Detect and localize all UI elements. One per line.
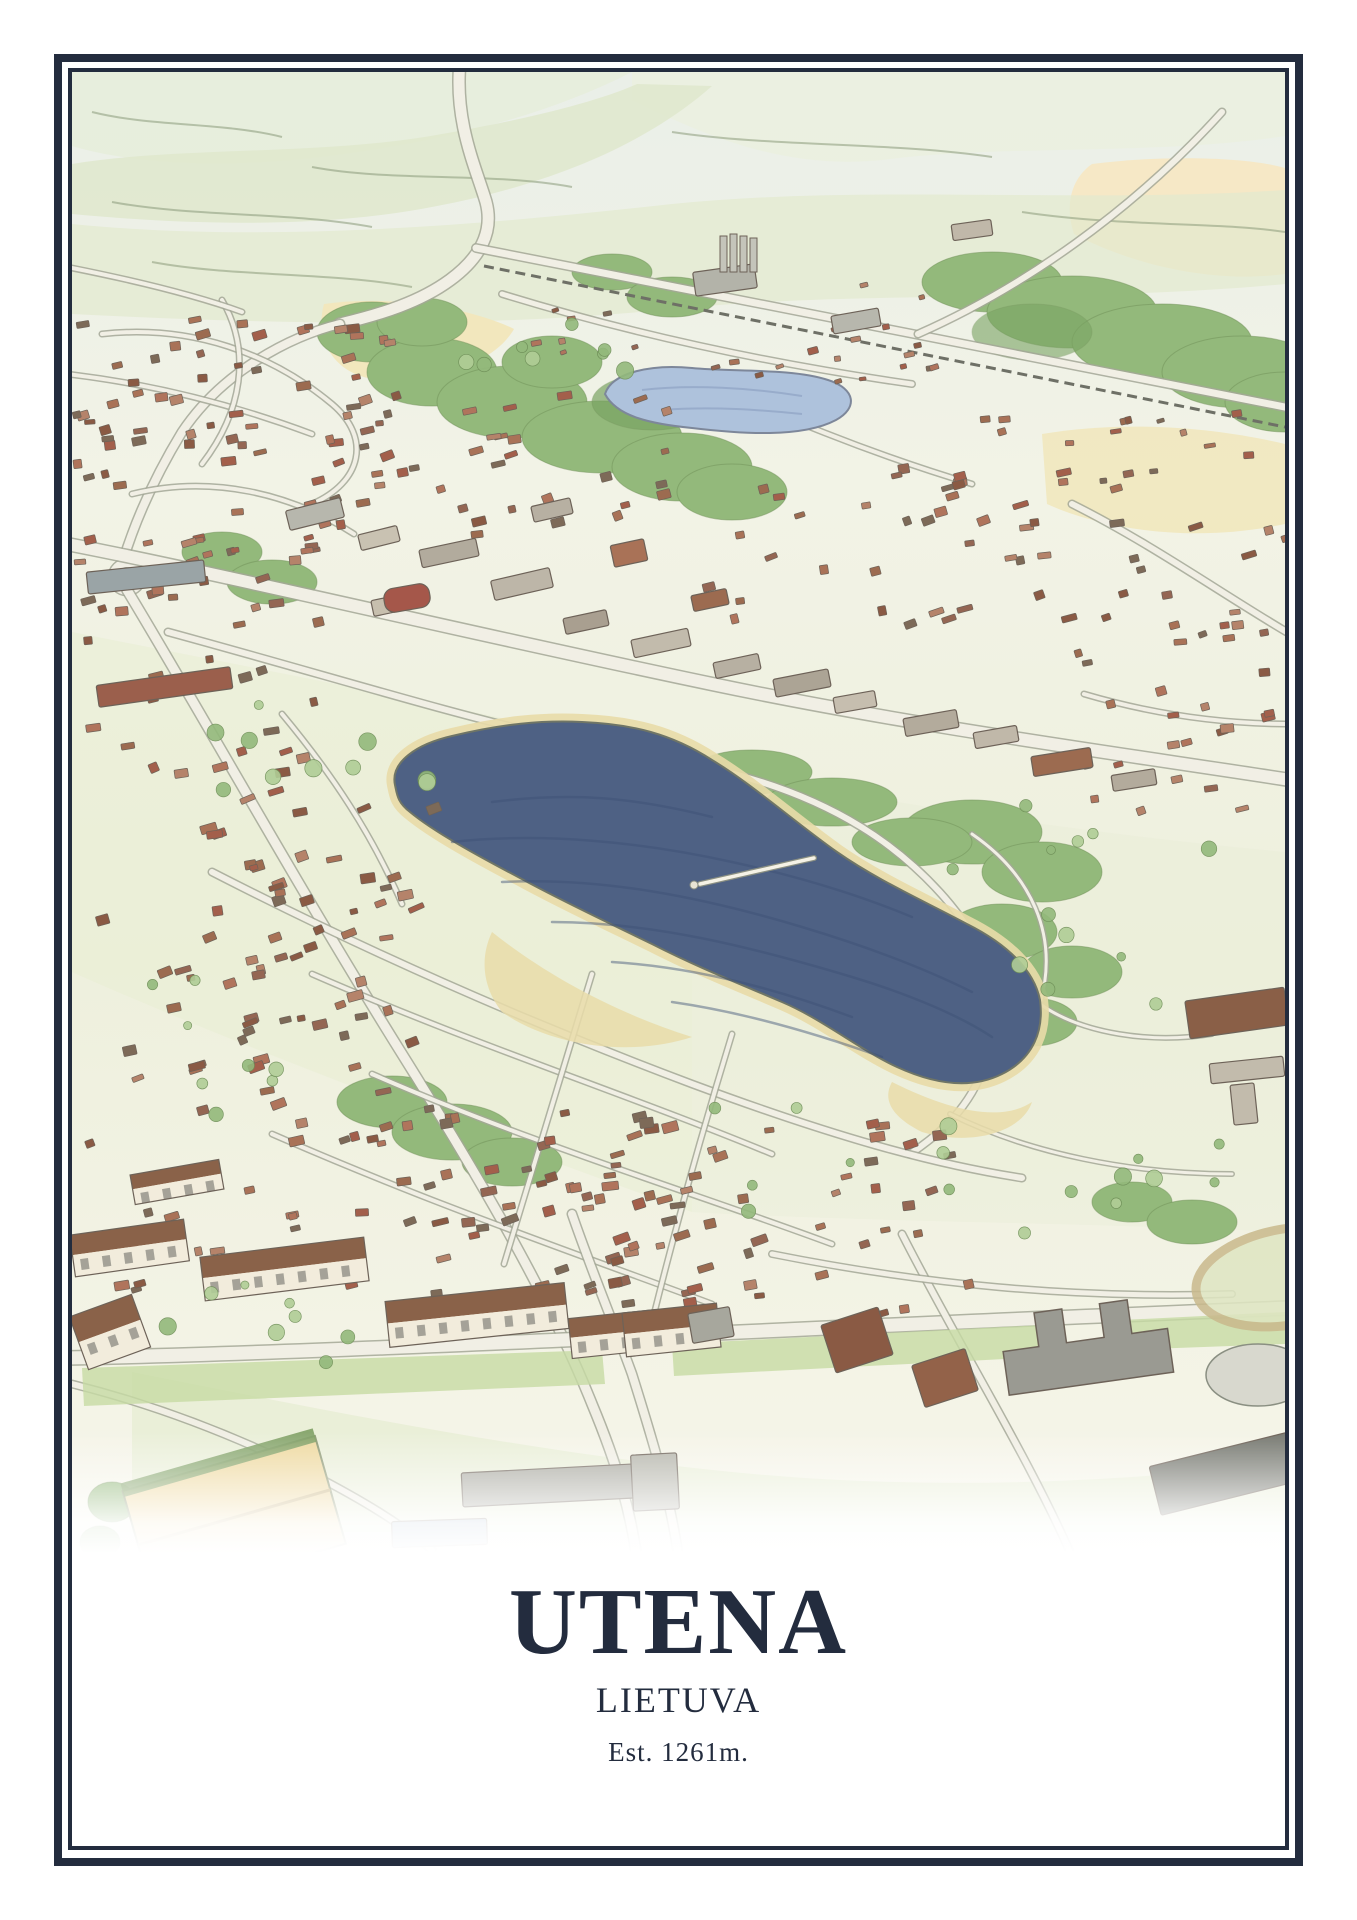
tree [459,354,474,369]
house [582,1205,594,1212]
tree [346,760,361,775]
house [729,359,739,365]
house [461,1217,475,1227]
tree [525,351,540,366]
house [861,502,871,509]
house [980,416,990,423]
house [350,332,364,339]
house [558,338,565,345]
house [819,565,828,575]
house [101,470,110,479]
house [1259,629,1269,637]
house [86,723,102,732]
house [1037,552,1051,559]
tree [1111,1198,1122,1209]
house [604,1172,616,1179]
tree [216,782,230,796]
house [1259,668,1270,677]
house [1100,478,1107,484]
house [1065,440,1074,445]
poster-title: UTENA [0,1575,1357,1669]
house [735,597,744,604]
house [234,362,243,368]
house [882,324,890,331]
tree [209,1107,224,1122]
poster-subtitle: LIETUVA [0,1682,1357,1718]
house [339,1031,349,1041]
house [212,905,223,916]
house [900,363,907,369]
bottom-fade [72,1432,1285,1553]
tree [1072,836,1084,848]
tree [159,1318,176,1335]
house [902,1200,915,1211]
house [336,520,346,530]
tree [1134,1154,1143,1163]
tree [341,1330,355,1344]
house [312,617,324,628]
house [1264,525,1274,535]
tree [207,724,224,741]
tree [566,318,579,331]
tree [184,1021,192,1029]
tree [1011,957,1027,973]
house [1220,622,1230,630]
tree [1042,908,1056,922]
house [1174,639,1187,646]
house [899,1304,909,1313]
house [343,411,353,420]
tree [791,1102,802,1113]
tree [241,1281,249,1289]
tree [1020,800,1032,812]
house [1090,795,1099,803]
house [1030,518,1040,526]
tree [709,1102,721,1114]
tree [419,774,436,791]
tree [1041,982,1055,996]
house [102,435,114,442]
house [229,410,243,418]
house [569,1182,582,1193]
house [84,419,95,424]
house [205,655,213,663]
tree [147,979,157,989]
house [764,1127,774,1133]
house [644,1190,656,1201]
house [73,459,82,469]
house [269,598,285,608]
house [1220,723,1234,733]
tree [1201,841,1217,857]
house [174,768,189,778]
tree [944,1184,955,1195]
house [913,342,921,349]
tree [285,1298,295,1308]
house [1123,470,1134,478]
house [83,636,92,645]
house [424,1105,435,1113]
house [113,481,127,490]
house [834,356,841,362]
house [639,1117,654,1129]
house [1149,468,1158,474]
house [963,1279,974,1290]
tree [616,362,633,379]
tree [254,700,263,709]
house [918,294,925,300]
house [115,606,128,616]
house [1232,620,1244,629]
tree [937,1146,950,1159]
tree [1210,1178,1219,1187]
house [74,559,86,565]
tree [268,1324,284,1340]
house [246,423,259,429]
tree [598,344,611,357]
tree [947,864,958,875]
tree [319,1356,332,1369]
tree [190,975,200,985]
tree [1214,1139,1224,1149]
house [155,392,168,402]
tree [741,1204,755,1218]
house [150,354,160,364]
house [1180,429,1188,437]
tree [197,1078,208,1089]
tree [1146,1170,1163,1187]
house [194,1247,203,1257]
tree [1059,927,1074,942]
house [397,467,409,477]
tree [516,341,527,352]
tree [940,1118,957,1135]
town-illustration [72,72,1285,1553]
house [737,1194,748,1204]
house [735,531,745,539]
house [170,341,181,351]
tree [265,769,281,785]
house [304,324,313,330]
house [471,530,484,538]
large-building [1230,1083,1258,1125]
house [334,325,348,334]
tree [1018,1227,1030,1239]
tree [1047,846,1056,855]
house [1109,519,1124,528]
house [476,1224,489,1232]
house [237,320,248,328]
house [374,482,385,489]
tree [359,733,377,751]
poster: { "poster": { "title": "UTENA", "subtitl… [0,0,1357,1920]
house [360,872,376,884]
house [371,470,383,477]
house [402,1120,413,1131]
house [704,1218,717,1229]
tree [269,1062,284,1077]
house [1162,591,1173,600]
tree [205,1287,218,1300]
house [1264,709,1275,717]
house [754,1293,764,1299]
house [355,1209,368,1217]
house [355,976,367,988]
house [288,1212,297,1220]
house [611,1162,621,1168]
house [1124,416,1132,424]
house [383,409,392,418]
tree [1065,1185,1077,1197]
house [440,1169,452,1180]
house [72,411,81,419]
house [349,1131,360,1142]
tree [242,1059,254,1071]
house [184,440,194,449]
house [621,1299,635,1308]
poster-caption: Est. 1261m. [0,1739,1357,1766]
house [231,508,243,515]
tree [241,732,257,748]
house [297,1015,306,1022]
house [544,1136,555,1146]
house [168,594,178,601]
house [869,1131,885,1142]
tree [1150,998,1163,1011]
house [1200,702,1210,711]
house [608,1277,623,1289]
house [859,377,866,381]
house [231,547,240,553]
house [128,379,139,387]
house [1231,409,1242,417]
house [965,540,975,547]
house [743,1279,757,1290]
house [309,697,318,707]
house [1223,634,1235,642]
house [773,493,785,501]
house [656,1242,665,1249]
tree [747,1180,757,1190]
house [1167,740,1180,749]
house [143,1208,153,1218]
house [508,505,516,513]
house [913,1229,923,1237]
house [295,1118,308,1129]
house [238,441,247,449]
house [594,1193,605,1204]
tree [1088,828,1099,839]
tree [477,357,491,371]
house [207,422,215,429]
house [864,1157,878,1166]
house [557,391,572,401]
house [450,1113,460,1124]
house [289,555,301,565]
house [1229,609,1240,615]
house [508,434,522,444]
house [1058,478,1068,486]
house [198,374,208,382]
house [252,970,266,980]
tree [1117,952,1126,961]
house [871,1183,881,1193]
house [221,456,237,466]
house [1167,712,1179,719]
house [114,1280,130,1291]
tree [1114,1168,1131,1185]
house [1106,699,1116,709]
house [409,464,420,471]
house [560,1109,570,1117]
house [396,1177,411,1186]
house [375,420,383,426]
tree [305,760,322,777]
house [602,1181,619,1191]
tree [846,1158,854,1166]
house [325,435,334,445]
tree [289,1310,301,1322]
house [1204,785,1218,793]
house [1243,452,1253,459]
large-building [688,1307,735,1344]
house [998,416,1010,423]
house [877,605,887,616]
